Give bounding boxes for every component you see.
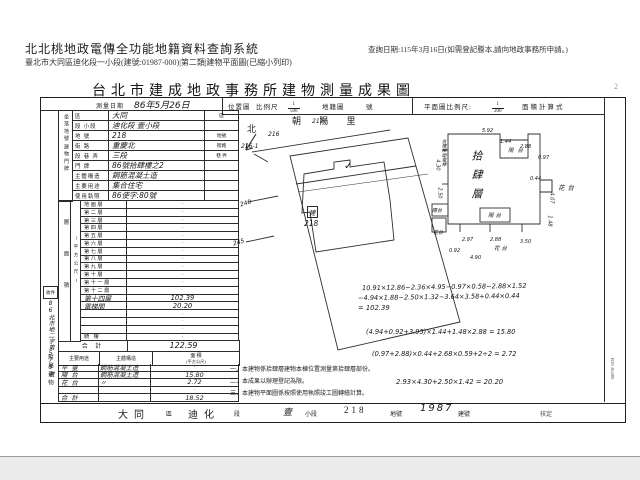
floor-strip-sublabel: (平方公尺) <box>73 235 79 287</box>
site-row-suffix: 地號 <box>205 131 239 141</box>
map-check-mark: ✓ <box>344 161 352 172</box>
floor-row-label: 第九層 <box>81 263 127 271</box>
annex-row-structure <box>99 394 151 402</box>
plan-dim: 3.50 <box>520 239 531 245</box>
annex-row-use: 花 台 <box>59 379 99 387</box>
footer-building-no: 1987 <box>420 403 453 414</box>
plan-dim: 4.07 <box>549 192 555 203</box>
cadastral-no-label: 號 <box>366 101 373 111</box>
site-row-suffix: 巷 弄 <box>205 151 239 161</box>
page-marker: 2 <box>614 82 618 91</box>
footer-lot-suffix: 地號 <box>390 409 402 418</box>
viewer-bottom-strip <box>0 456 640 480</box>
site-row-value: 鋼筋混凝土造 <box>109 171 205 181</box>
note-2: 二、本成果以辦理登記為限。 <box>230 376 308 385</box>
site-group-strip: 坐落地號 建物門牌 <box>58 110 73 202</box>
map-lot-218: 218 <box>304 219 318 228</box>
floor-row-label <box>81 318 127 326</box>
site-row-label: 街 路 <box>73 141 109 151</box>
annex-row-structure: 鋼筋混凝土造 <box>99 372 151 380</box>
receipt-label: 收件 <box>43 286 58 299</box>
plan-dim: 1.48 <box>547 215 553 226</box>
annex-row-area: 15.80 <box>151 372 239 380</box>
note-1: 一、本建物係拾肆層建物本棟位置測量第拾肆層部份。 <box>230 364 374 373</box>
floor-row-label: 第八層 <box>81 256 127 264</box>
floor-row-value: · <box>127 256 239 264</box>
floor-row-value: · <box>127 217 239 225</box>
site-row-suffix: 區 <box>205 111 239 121</box>
footer-approve-label: 核定 <box>540 409 552 418</box>
footer-building-suffix: 建號 <box>458 409 470 418</box>
annex-strip-label: 附屬建物 <box>46 354 54 402</box>
floor-row-label: 第四層 <box>81 224 127 232</box>
plan-dim: 4.90 <box>470 255 481 261</box>
floor-row-label: 地面層 <box>81 201 127 209</box>
footer-subsection-suffix: 小段 <box>305 409 317 418</box>
annex-header-area: 面 積 <box>190 352 201 359</box>
map-build-mark: 建 <box>307 206 318 218</box>
site-row-value: 86號拾肆樓之2 <box>109 161 205 171</box>
floor-row-value: 102.39 <box>127 295 239 303</box>
site-row-value: 迪化段 壹小段 <box>109 121 205 131</box>
plan-dim: 4.30 <box>435 159 441 170</box>
area-formula-3: = 102.39 <box>358 304 390 312</box>
site-row-suffix: 街路 <box>205 141 239 151</box>
plan-dim: 0.97 <box>538 155 549 161</box>
land-registry-viewer: 北北桃地政電傳全功能地籍資料查詢系統 臺北市大同區迪化段一小段(建號:01987… <box>0 0 640 480</box>
site-row-label: 段 巷 弄 <box>73 151 109 161</box>
site-row-value: 集合住宅 <box>109 181 205 191</box>
area-formula-6: 2.93×4.30+2.50×1.42 = 20.20 <box>396 378 503 386</box>
floor-row-label: 第五層 <box>81 232 127 240</box>
floor-row-label <box>81 310 127 318</box>
plan-dim: 5.92 <box>482 128 493 134</box>
annex-row-area: 18.52 <box>151 394 239 402</box>
annex-row-area: · <box>151 387 239 395</box>
floor-total-value: 122.59 <box>128 340 239 351</box>
area-formula-5: (0.97+2.88)×0.44+2.68×0.59+2÷2 = 2.72 <box>372 350 517 358</box>
footer-district: 大同 <box>118 406 150 421</box>
footer-section-suffix: 段 <box>234 409 240 418</box>
query-date: 查詢日期:115年3月16日(如需登記謄本,請向地政事務所申請。) <box>368 44 568 55</box>
floor-strip-label: 層面積 <box>62 219 70 314</box>
floor-row-value: · <box>127 263 239 271</box>
site-row-label: 區 <box>73 111 109 121</box>
system-title: 北北桃地政電傳全功能地籍資料查詢系統 <box>25 40 259 57</box>
plan-dim: 2.88 <box>490 237 501 243</box>
site-row-label: 主要用途 <box>73 181 109 191</box>
floor-row-value: 20.20 <box>127 302 239 310</box>
floor-row-value: · <box>127 310 239 318</box>
annex-row-use: 平 臺 <box>59 364 99 372</box>
plan-scale-fraction: 1200 <box>492 99 504 117</box>
site-row-label: 段 小段 <box>73 121 109 131</box>
floor-row-label: 第七層 <box>81 248 127 256</box>
area-calc-label: 面積計算式 <box>522 101 565 111</box>
floor-row-value: · <box>127 248 239 256</box>
location-scale-label: 比例尺 <box>256 101 279 111</box>
survey-date-label: 測量日期 <box>96 101 124 110</box>
site-row-label: 門 牌 <box>73 161 109 171</box>
floor-total-label: 合 計 <box>59 340 128 351</box>
map-north-label: 北 <box>247 122 256 135</box>
plan-flower-bottom-label: 花台 <box>494 244 509 252</box>
plan-flower-left-label: 花台 <box>433 229 443 236</box>
floor-row-label: 第六層 <box>81 240 127 248</box>
annex-row-use: 陽 台 <box>59 372 99 380</box>
footer-section: 迪化 <box>188 406 220 421</box>
site-row-label: 主體構造 <box>73 171 109 181</box>
document-subtitle: 臺北市大同區迪化段一小段(建號:01987-000)|第二類|建物平面圖(已縮小… <box>25 57 292 68</box>
floor-row-label: 第三層 <box>81 217 127 225</box>
site-row-value: 三段 <box>109 151 205 161</box>
floor-row-value: · <box>127 232 239 240</box>
site-row-value: 重慶北 <box>109 141 205 151</box>
plan-flower-right-label: 花台 <box>558 182 577 192</box>
site-group1-label: 坐落地號 <box>62 114 69 143</box>
site-row-suffix <box>205 181 239 191</box>
floor-row-label: 第十四層 <box>81 295 127 303</box>
floor-row-label: 第十層 <box>81 271 127 279</box>
site-group2-label: 建物門牌 <box>62 144 69 173</box>
floor-row-value: · <box>127 271 239 279</box>
plan-dim: 2.88 <box>520 144 531 150</box>
footer-subsection: 壹 <box>283 405 292 418</box>
annex-row-area: · <box>151 364 239 372</box>
annex-row-structure <box>99 387 151 395</box>
map-lot-216-1: 216-1 <box>241 143 258 150</box>
plan-balcony-left-label: 陽台 <box>432 207 442 214</box>
annex-row-use <box>59 387 99 395</box>
plan-dim: 2.97 <box>462 237 473 243</box>
plan-dim: 0.44 <box>530 176 541 182</box>
floor-row-value: · <box>127 209 239 217</box>
annex-row-structure: 〃 <box>99 379 151 387</box>
scale-denominator: 200 <box>492 108 504 115</box>
plan-dim: 2.50 <box>437 187 443 198</box>
form-code: R26 30,000 <box>610 358 615 379</box>
site-row-suffix <box>205 121 239 131</box>
site-row-suffix <box>205 171 239 181</box>
annex-row-area: 2.72 <box>151 379 239 387</box>
annex-table: 平 臺 鋼筋混凝土造 · 陽 台 鋼筋混凝土造 15.80 花 台 〃 2.72… <box>58 364 239 402</box>
floor-row-label: 第十一層 <box>81 279 127 287</box>
annex-row-structure: 鋼筋混凝土造 <box>99 364 151 372</box>
floor-row-label: 第十二層 <box>81 287 127 295</box>
plan-dim: 1.44 <box>500 139 511 145</box>
floor-row-value: · <box>127 318 239 326</box>
floor-row-value: · <box>127 279 239 287</box>
plan-floor-label: 拾肆層 <box>468 150 484 220</box>
floor-area-table: 地面層 · 第二層 · 第三層 · 第四層 · 第五層 · 第六層 · 第七層 … <box>80 200 239 341</box>
annex-row-use: 合 計 <box>59 394 99 402</box>
floor-row-value: · <box>127 287 239 295</box>
floor-row-value: · <box>127 224 239 232</box>
plan-dim: 0.92 <box>449 248 460 254</box>
footer-district-suffix: 區 <box>166 409 172 418</box>
area-formula-4: (4.94+0.92+3.95)×1.44+1.48×2.88 = 15.80 <box>366 328 515 336</box>
floor-row-label: 電梯間 <box>81 302 127 310</box>
plan-balcony-bottom-label: 陽台 <box>488 211 503 219</box>
floor-row-label <box>81 326 127 334</box>
floor-row-value: · <box>127 240 239 248</box>
map-lot-216: 216 <box>268 131 279 138</box>
note-3: 三、本建物平面圖係按照使用執照竣工圖轉繪計算。 <box>230 388 368 397</box>
site-table: 區 大同 區 段 小段 迪化段 壹小段 地 號 218 地號 街 路 重慶北 街… <box>72 110 239 201</box>
site-row-value: 218 <box>109 131 205 141</box>
site-row-value: 大同 <box>109 111 205 121</box>
footer-lot: 218 <box>344 405 367 415</box>
floor-row-label: 第二層 <box>81 209 127 217</box>
site-row-suffix <box>205 161 239 171</box>
cadastral-label: 地籍圖 <box>322 101 345 111</box>
site-row-label: 地 號 <box>73 131 109 141</box>
plan-scale-label: 平面圖比例尺: <box>424 101 472 111</box>
floor-row-value: · <box>127 326 239 334</box>
map-village-label: 朝 陽 里 <box>292 114 364 127</box>
floor-row-value: · <box>127 201 239 209</box>
map-lot-217: 217 <box>312 118 323 125</box>
